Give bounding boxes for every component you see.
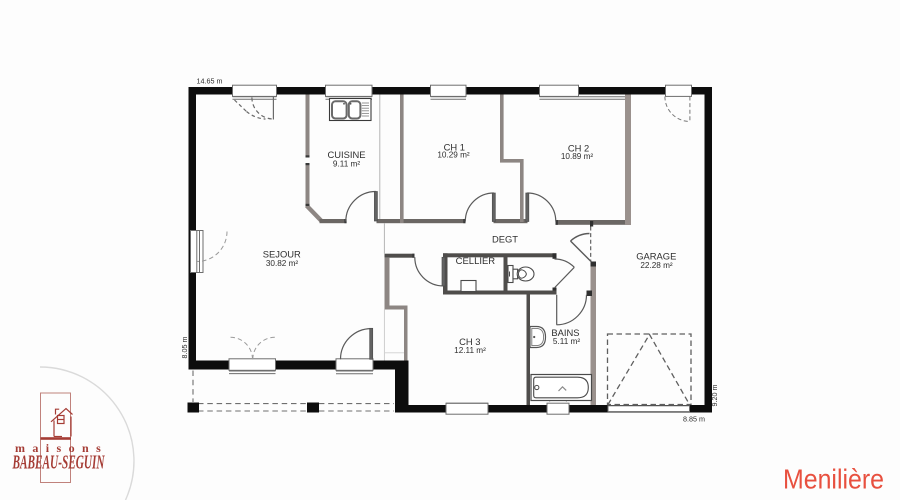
svg-text:30.82 m²: 30.82 m²: [266, 259, 299, 268]
svg-text:10.29 m²: 10.29 m²: [437, 151, 470, 160]
svg-text:BABEAU-SEGUIN: BABEAU-SEGUIN: [12, 451, 105, 473]
svg-text:22.28 m²: 22.28 m²: [640, 261, 673, 270]
svg-text:10.89 m²: 10.89 m²: [561, 152, 594, 161]
svg-text:CELLIER: CELLIER: [456, 255, 496, 266]
svg-text:9.11 m²: 9.11 m²: [333, 160, 360, 169]
svg-text:14.65 m: 14.65 m: [197, 77, 223, 86]
svg-text:8.05 m: 8.05 m: [180, 337, 189, 359]
svg-text:GARAGE: GARAGE: [636, 250, 676, 261]
svg-text:12.11 m²: 12.11 m²: [454, 346, 486, 355]
svg-text:Menilière: Menilière: [783, 464, 884, 495]
svg-text:DEGT: DEGT: [492, 233, 518, 244]
svg-text:CUISINE: CUISINE: [327, 149, 365, 160]
svg-text:BAINS: BAINS: [551, 327, 579, 338]
svg-text:9.20 m: 9.20 m: [710, 385, 719, 407]
svg-text:8.85 m: 8.85 m: [683, 415, 705, 424]
svg-text:SEJOUR: SEJOUR: [263, 248, 301, 259]
svg-text:5.11 m²: 5.11 m²: [553, 337, 580, 346]
